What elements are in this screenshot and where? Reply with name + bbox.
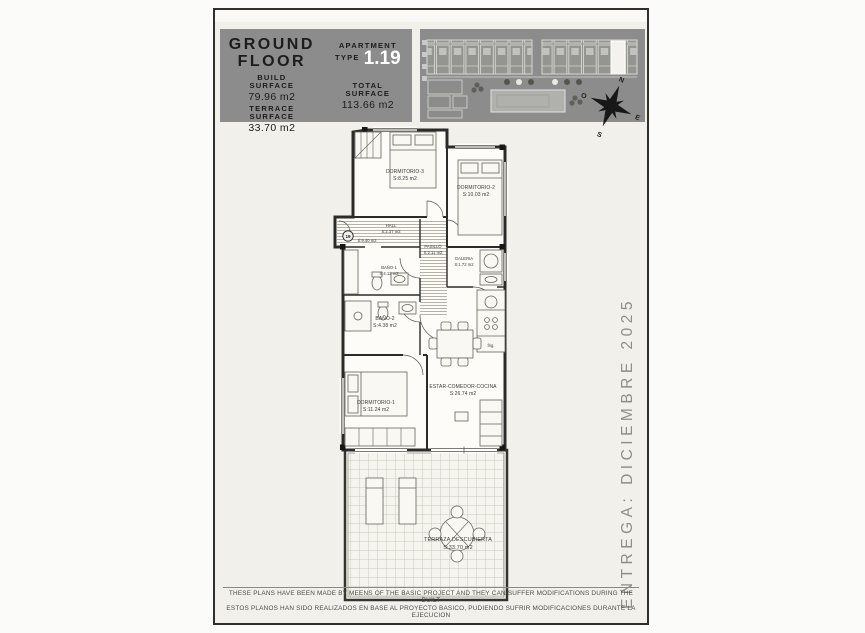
apartment-label-l2: TYPE bbox=[335, 53, 360, 62]
total-surface-label-l2: SURFACE bbox=[324, 90, 412, 98]
room-label-estar-comedor-cocina: ESTAR-COMEDOR-COCINA bbox=[429, 384, 497, 390]
room-area-terraza: S:33.70 m2 bbox=[443, 545, 473, 551]
room-area-hall: S:2.37 m2 bbox=[381, 229, 401, 234]
total-surface-value: 113.66 m2 bbox=[324, 99, 412, 112]
kitchen-fridge-label: frig. bbox=[488, 343, 495, 348]
disclaimer: THESE PLANS HAVE BEEN MADE BY MEENS OF T… bbox=[223, 587, 639, 620]
floor-title-line1: GROUND bbox=[220, 36, 324, 53]
room-area-pasillo: S:2.11 m2 bbox=[424, 250, 443, 255]
room-label-galeria: GALERIA bbox=[455, 256, 473, 261]
porch-area-label: S:9.40 m2 bbox=[357, 238, 377, 243]
floor-title-line2: FLOOR bbox=[220, 53, 324, 70]
title-block: GROUND FLOOR BUILD SURFACE 79.96 m2 TERR… bbox=[220, 29, 412, 122]
room-area-dormitorio-1: S:11.24 m2 bbox=[363, 407, 389, 413]
build-surface-value: 79.96 m2 bbox=[220, 91, 324, 104]
apartment-plan: 19 DORMITORIO-3 S:8.25 m2 DORMITORIO-2 S… bbox=[335, 127, 509, 601]
room-label-terraza: TERRAZA DESCUBIERTA bbox=[424, 537, 492, 543]
room-label-pasillo: PASILLO bbox=[424, 244, 442, 249]
room-area-galeria: S:1.72 m2 bbox=[454, 262, 474, 267]
title-block-left: GROUND FLOOR BUILD SURFACE 79.96 m2 TERR… bbox=[220, 29, 324, 122]
room-area-bano-1: S:4.12 m2 bbox=[379, 271, 399, 276]
title-block-right: APARTMENT TYPE 1.19 TOTAL SURFACE 113.66… bbox=[324, 29, 412, 122]
room-label-dormitorio-1: DORMITORIO-1 bbox=[357, 400, 395, 406]
room-label-dormitorio-3: DORMITORIO-3 bbox=[386, 169, 424, 175]
room-label-bano-1: BAÑO-1 bbox=[381, 265, 397, 270]
room-area-dormitorio-3: S:8.25 m2 bbox=[393, 176, 417, 182]
unit-marker: 19 bbox=[343, 231, 353, 241]
room-label-bano-2: BAÑO-2 bbox=[375, 315, 394, 322]
terrace-surface-value: 33.70 m2 bbox=[220, 122, 324, 135]
highlighted-unit bbox=[611, 41, 625, 74]
room-area-bano-2: S:4.38 m2 bbox=[373, 323, 397, 329]
room-area-dormitorio-2: S:10.03 m2 bbox=[463, 192, 490, 198]
pool bbox=[491, 90, 565, 112]
disclaimer-line1: THESE PLANS HAVE BEEN MADE BY MEENS OF T… bbox=[223, 590, 639, 605]
terrace-surface-label-l2: SURFACE bbox=[220, 113, 324, 121]
plan-sheet: N E S O bbox=[213, 8, 649, 625]
build-surface-label-l2: SURFACE bbox=[220, 82, 324, 90]
svg-text:19: 19 bbox=[345, 234, 351, 239]
room-label-dormitorio-2: DORMITORIO-2 bbox=[457, 185, 495, 191]
room-area-estar-comedor-cocina: S:26.74 m2 bbox=[450, 391, 477, 397]
delivery-note: ENTREGA: DICIEMBRE 2025 bbox=[619, 297, 637, 609]
room-label-hall: HALL bbox=[386, 223, 397, 228]
apartment-number: 1.19 bbox=[364, 50, 401, 68]
compass-south: S bbox=[596, 131, 603, 139]
disclaimer-line2: ESTOS PLANOS HAN SIDO REALIZADOS EN BASE… bbox=[223, 605, 639, 620]
